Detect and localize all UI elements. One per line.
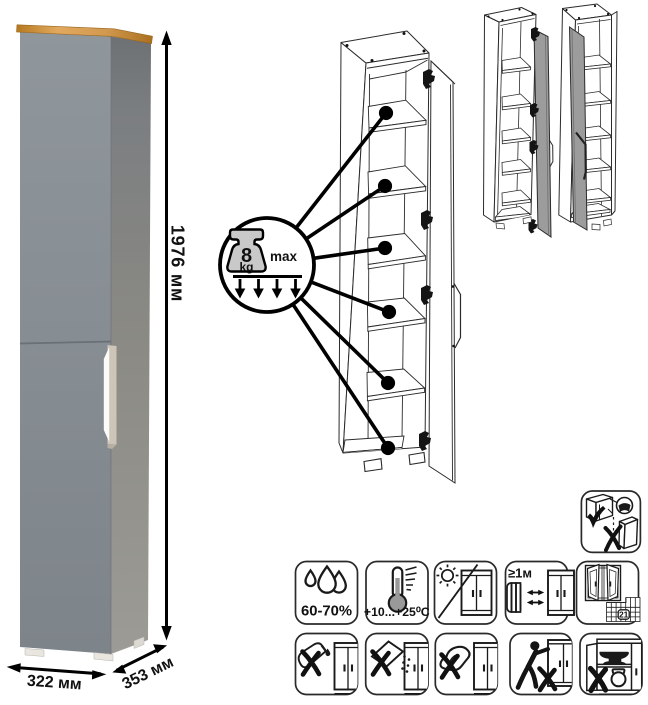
svg-text:60-70%: 60-70% <box>301 604 352 620</box>
svg-text:max: max <box>270 249 298 264</box>
svg-text:kg: kg <box>239 260 253 274</box>
svg-text:≥1м: ≥1м <box>508 566 532 581</box>
svg-text:1976 мм: 1976 мм <box>168 225 188 302</box>
svg-text:+10...+25⁰С: +10...+25⁰С <box>364 605 430 619</box>
svg-text:21: 21 <box>619 609 629 619</box>
